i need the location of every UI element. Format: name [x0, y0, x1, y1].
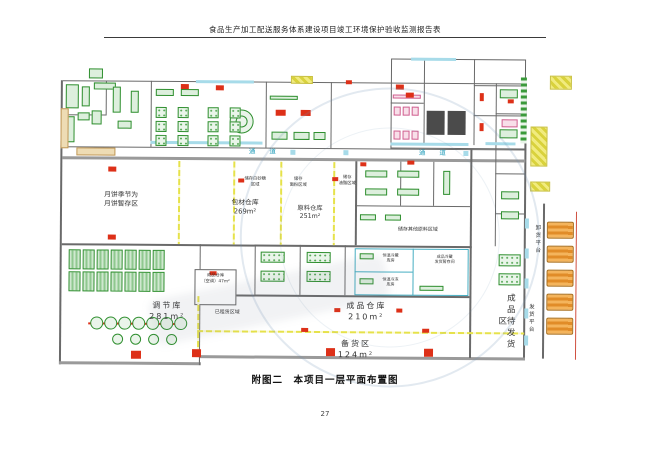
green-equipment [78, 112, 90, 120]
machine-icon [130, 334, 141, 345]
wall-line [495, 83, 497, 246]
corridor-label-left: 通 道 [233, 147, 297, 156]
wall-line [265, 82, 266, 148]
red-marker [407, 161, 414, 165]
document-page: 食品生产加工配送服务体系建设项目竣工环境保护验收监测报告表 月饼季节为 月饼暂存… [0, 0, 650, 458]
room-label-cold-shipping-buffer: 成品冷藏 发货暂存间 [423, 254, 467, 265]
red-marker [108, 167, 116, 172]
zone-label-sugar: 储存白砂糖 区域 [234, 176, 276, 188]
table-icon [261, 271, 285, 282]
cyan-wall [390, 143, 468, 147]
table-icon [230, 107, 241, 118]
green-equipment [501, 211, 519, 219]
shelf-rack-icon [110, 272, 122, 292]
wall-line [495, 173, 525, 174]
room-label-finished-small: 成品仓库 （空调）47m² [193, 273, 237, 285]
green-equipment [270, 96, 298, 100]
table-icon [498, 273, 520, 285]
green-equipment [181, 89, 199, 96]
green-equipment [365, 188, 387, 195]
table-icon [178, 121, 189, 132]
stairs-hatch [530, 181, 550, 191]
green-equipment [271, 132, 287, 140]
machine-icon [112, 334, 123, 345]
sanitary-fixture [394, 107, 401, 116]
wall-line [150, 81, 151, 147]
truck-icon [547, 222, 574, 239]
green-equipment [92, 110, 102, 124]
table-icon [208, 121, 219, 132]
green-equipment [419, 286, 443, 291]
shelf-rack-icon [124, 272, 136, 292]
green-equipment [501, 191, 519, 199]
table-icon [499, 254, 521, 266]
wall-thick [59, 361, 201, 365]
sanitary-fixture [403, 131, 410, 140]
green-equipment [89, 68, 103, 78]
shelf-rack-icon [96, 271, 108, 291]
red-marker [424, 349, 433, 357]
cyan-wall [196, 80, 254, 83]
stairs-hatch [530, 126, 547, 166]
green-equipment [397, 189, 419, 196]
red-marker [508, 99, 514, 103]
shelf-rack-icon [97, 249, 109, 269]
red-marker [480, 123, 484, 131]
shelf-rack-icon [83, 249, 95, 269]
table-icon [155, 135, 166, 146]
green-equipment [365, 170, 387, 177]
truck-icon [546, 270, 573, 287]
wall-line [344, 245, 345, 295]
red-marker [181, 84, 189, 89]
wall-line [62, 243, 472, 247]
shelf-rack-icon [68, 271, 80, 291]
page-header: 食品生产加工配送服务体系建设项目竣工环境保护验收监测报告表 [0, 24, 650, 35]
cyan-wall [525, 248, 529, 258]
shelf-rack-icon [69, 249, 81, 269]
table-icon [229, 135, 240, 146]
table-icon [207, 135, 218, 146]
room-label-packaging-warehouse: 包材仓库 269m² [207, 198, 283, 216]
fixture-strip [520, 77, 526, 143]
area-label-awaiting-shipment: 成品待发货区 [497, 289, 514, 355]
red-marker [216, 85, 224, 90]
room-label-cold-storage: 恒温冷藏 库房 [372, 252, 410, 263]
shelf-rack-icon [125, 250, 137, 270]
elevator-shaft [427, 111, 445, 135]
table-icon [178, 107, 189, 118]
green-equipment [397, 171, 419, 178]
zone-label-other-materials: 储存其他原料区域 [371, 226, 465, 233]
red-marker [108, 235, 116, 240]
red-marker [131, 351, 141, 359]
wall-line [391, 103, 424, 104]
red-marker [360, 162, 366, 166]
counter [60, 108, 68, 148]
shelf-rack-icon [82, 271, 94, 291]
cyan-wall [411, 58, 456, 61]
green-equipment [360, 214, 376, 220]
red-marker [406, 93, 414, 98]
shelf-rack-icon [138, 272, 150, 292]
truck-icon [546, 318, 573, 335]
wall-line [542, 204, 545, 359]
green-equipment [385, 214, 401, 220]
wall-line [469, 149, 472, 358]
shelf-rack-icon [153, 250, 165, 270]
table-icon [230, 121, 241, 132]
sanitary-fixture [412, 131, 419, 140]
red-marker [276, 110, 286, 116]
stairs-hatch [291, 76, 313, 84]
machine-icon [104, 317, 117, 330]
figure-caption: 附图二 本项目一层平面布置图 [0, 372, 650, 386]
sanitary-fixture [394, 131, 401, 140]
area-label-leased: 已租赁区域 [200, 309, 254, 316]
green-equipment [118, 121, 132, 129]
page-number: 27 [0, 410, 650, 418]
red-marker [480, 93, 484, 101]
zone-label-flour: 储存 面粉区域 [278, 177, 318, 189]
red-marker [346, 80, 352, 84]
machine-icon [90, 316, 103, 329]
red-marker [301, 110, 311, 116]
wall-line [355, 205, 470, 207]
elevator-shaft [448, 111, 466, 135]
table-icon [307, 271, 331, 282]
table-icon [177, 135, 188, 146]
room-label-regulating-warehouse: 调节库 281m² [130, 301, 204, 323]
cyan-wall [524, 278, 528, 288]
table-icon [156, 121, 167, 132]
green-equipment [156, 89, 174, 96]
stairs-hatch [550, 76, 572, 90]
room-label-mooncake-storage: 月饼季节为 月饼暂存区 [85, 190, 157, 208]
shelf-rack-icon [152, 272, 164, 292]
green-equipment [500, 129, 518, 138]
wall-line [400, 162, 401, 206]
room-label-stock-area: 备货区 124m² [315, 339, 397, 361]
truck-icon [546, 294, 573, 311]
wall-line [355, 161, 357, 245]
corridor-label-right: 通 道 [403, 149, 467, 158]
shelf-rack-icon [139, 250, 151, 270]
floor-plan: 月饼季节为 月饼暂存区 包材仓库 269m² 原料仓库 251m² 储存白砂糖 … [54, 50, 581, 372]
table-icon [261, 252, 285, 263]
table-icon [307, 252, 331, 263]
header-divider [104, 37, 546, 38]
green-equipment [66, 84, 79, 108]
yellow-divider-line [178, 161, 181, 244]
table-icon [208, 107, 219, 118]
green-equipment [443, 171, 450, 195]
truck-icon [547, 246, 574, 263]
room-label-freezer: 恒温冷冻 库房 [371, 276, 409, 287]
counter [76, 147, 115, 155]
green-equipment [131, 91, 139, 113]
green-equipment [500, 89, 518, 98]
red-boundary-line [575, 212, 577, 360]
cyan-wall [525, 218, 529, 228]
red-marker [301, 328, 308, 332]
red-marker [422, 329, 429, 333]
red-marker [192, 349, 201, 357]
table-icon [156, 107, 167, 118]
yellow-divider-line [197, 330, 524, 334]
sanitary-fixture [403, 107, 410, 116]
shelf-rack-icon [111, 250, 123, 270]
label-shipping-platform: 发货平台 [527, 296, 533, 340]
machine-icon [166, 334, 177, 345]
room-label-finished-warehouse: 成品仓库 210m² [324, 301, 408, 323]
machine-icon [148, 334, 159, 345]
green-equipment [82, 86, 90, 106]
room-label-raw-warehouse: 原料仓库 251m² [274, 205, 346, 222]
zone-label-oil: 储存 油脂区域 [327, 175, 367, 187]
cyan-wall [485, 142, 515, 145]
wall-line [254, 245, 255, 295]
wall-line [330, 82, 331, 148]
green-equipment [293, 132, 309, 140]
sanitary-fixture [502, 119, 518, 127]
green-equipment [113, 87, 121, 113]
red-marker [396, 85, 404, 90]
wall-line [299, 245, 300, 295]
green-equipment [313, 132, 325, 140]
sanitary-fixture [412, 107, 419, 116]
label-unloading-platform: 卸货平台 [534, 218, 540, 262]
cyan-wall [343, 150, 348, 155]
wall-line [433, 162, 434, 206]
